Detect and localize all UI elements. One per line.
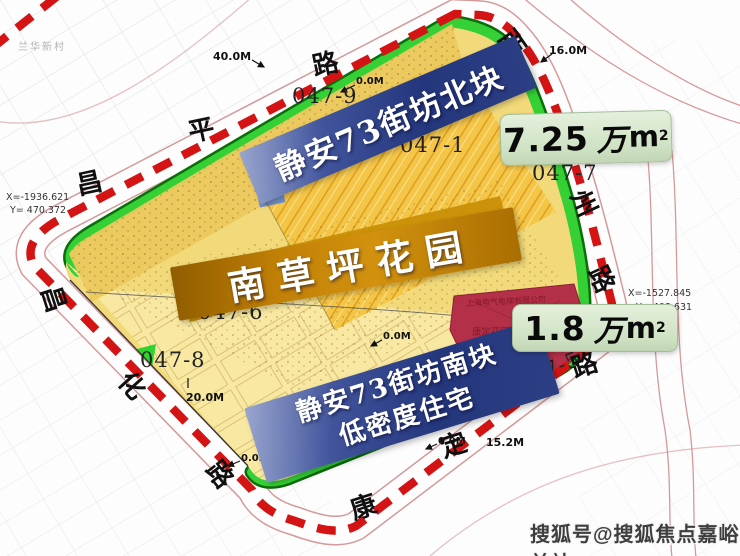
measurement-16m: 16.0M [549, 44, 587, 57]
measurement-20m: 20.0M [186, 391, 224, 404]
measurement-15-2m: 15.2M [486, 436, 524, 449]
area-label-south: 1.8 万 m 2 [512, 304, 678, 352]
coordinate-east-x: X=-1527.845 [628, 288, 691, 299]
planning-map-screenshot: 兰华新村 昌 平 路 西 州 路 康 定 路 昌 化 路 047-9 047-1… [0, 0, 740, 556]
area-south-wan: 万 [594, 306, 624, 350]
area-north-value: 7.25 [503, 118, 589, 159]
measurement-0m-5: 0.0M [438, 436, 466, 447]
parcel-code-047-8: 047-8 [140, 348, 206, 372]
parcel-code-047-9: 047-9 [292, 84, 358, 108]
area-south-unit: m [626, 311, 656, 345]
area-label-north: 7.25 万 m 2 [499, 110, 672, 166]
measurement-0m-3: 0.0M [383, 331, 411, 342]
background-neighborhood-label: 兰华新村 [18, 38, 66, 53]
area-south-value: 1.8 [524, 309, 585, 348]
area-north-wan: 万 [596, 115, 627, 160]
coordinate-west-y: Y= 470.372 [10, 205, 66, 216]
measurement-0m-1: 0.0M [356, 76, 384, 87]
coordinate-west-x: X=-1936.621 [6, 192, 69, 203]
area-north-unit: m [628, 119, 659, 154]
watermark: 搜狐号@搜狐焦点嘉峪关站 [530, 518, 740, 556]
measurement-40m: 40.0M [213, 50, 251, 63]
